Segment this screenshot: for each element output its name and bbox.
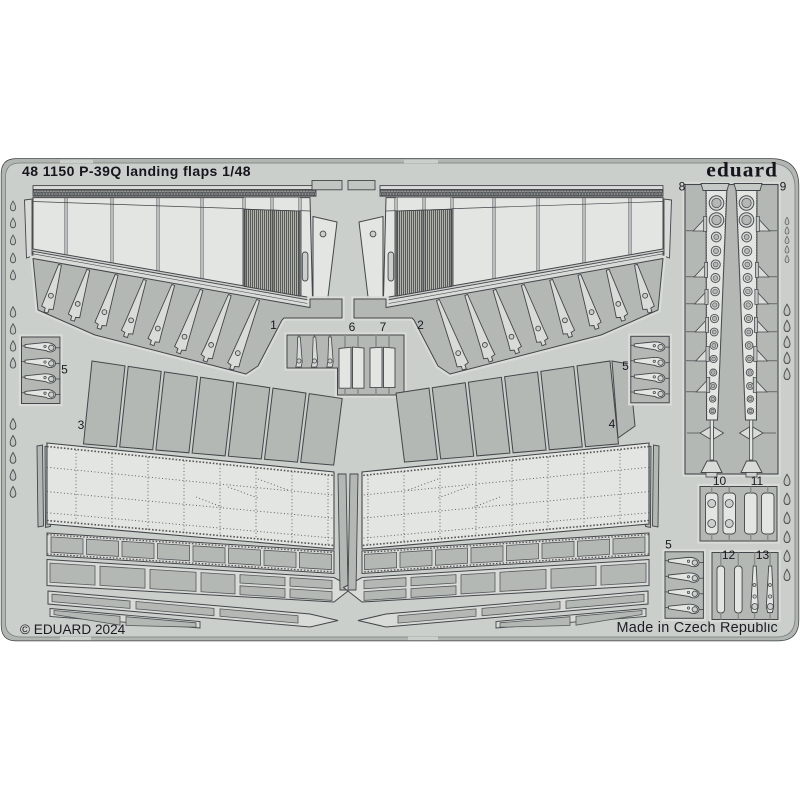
svg-text:9: 9 (780, 180, 787, 194)
svg-text:5: 5 (665, 538, 672, 552)
svg-text:1: 1 (270, 318, 277, 332)
svg-text:5: 5 (61, 363, 68, 377)
svg-text:5: 5 (622, 359, 629, 373)
svg-text:10: 10 (713, 474, 727, 488)
svg-text:2: 2 (417, 318, 424, 332)
svg-text:Made in Czech Republic: Made in Czech Republic (617, 620, 778, 636)
svg-text:11: 11 (751, 474, 764, 488)
svg-text:8: 8 (679, 180, 686, 194)
svg-text:7: 7 (380, 320, 387, 334)
svg-text:© EDUARD 2024: © EDUARD 2024 (20, 622, 126, 637)
svg-text:6: 6 (349, 320, 356, 334)
svg-text:eduard: eduard (706, 158, 778, 182)
svg-text:48 1150 P-39Q landing flaps 1/: 48 1150 P-39Q landing flaps 1/48 (22, 163, 251, 179)
svg-text:13: 13 (756, 548, 770, 562)
svg-text:12: 12 (722, 548, 736, 562)
svg-text:3: 3 (78, 418, 85, 432)
svg-text:4: 4 (609, 417, 616, 431)
